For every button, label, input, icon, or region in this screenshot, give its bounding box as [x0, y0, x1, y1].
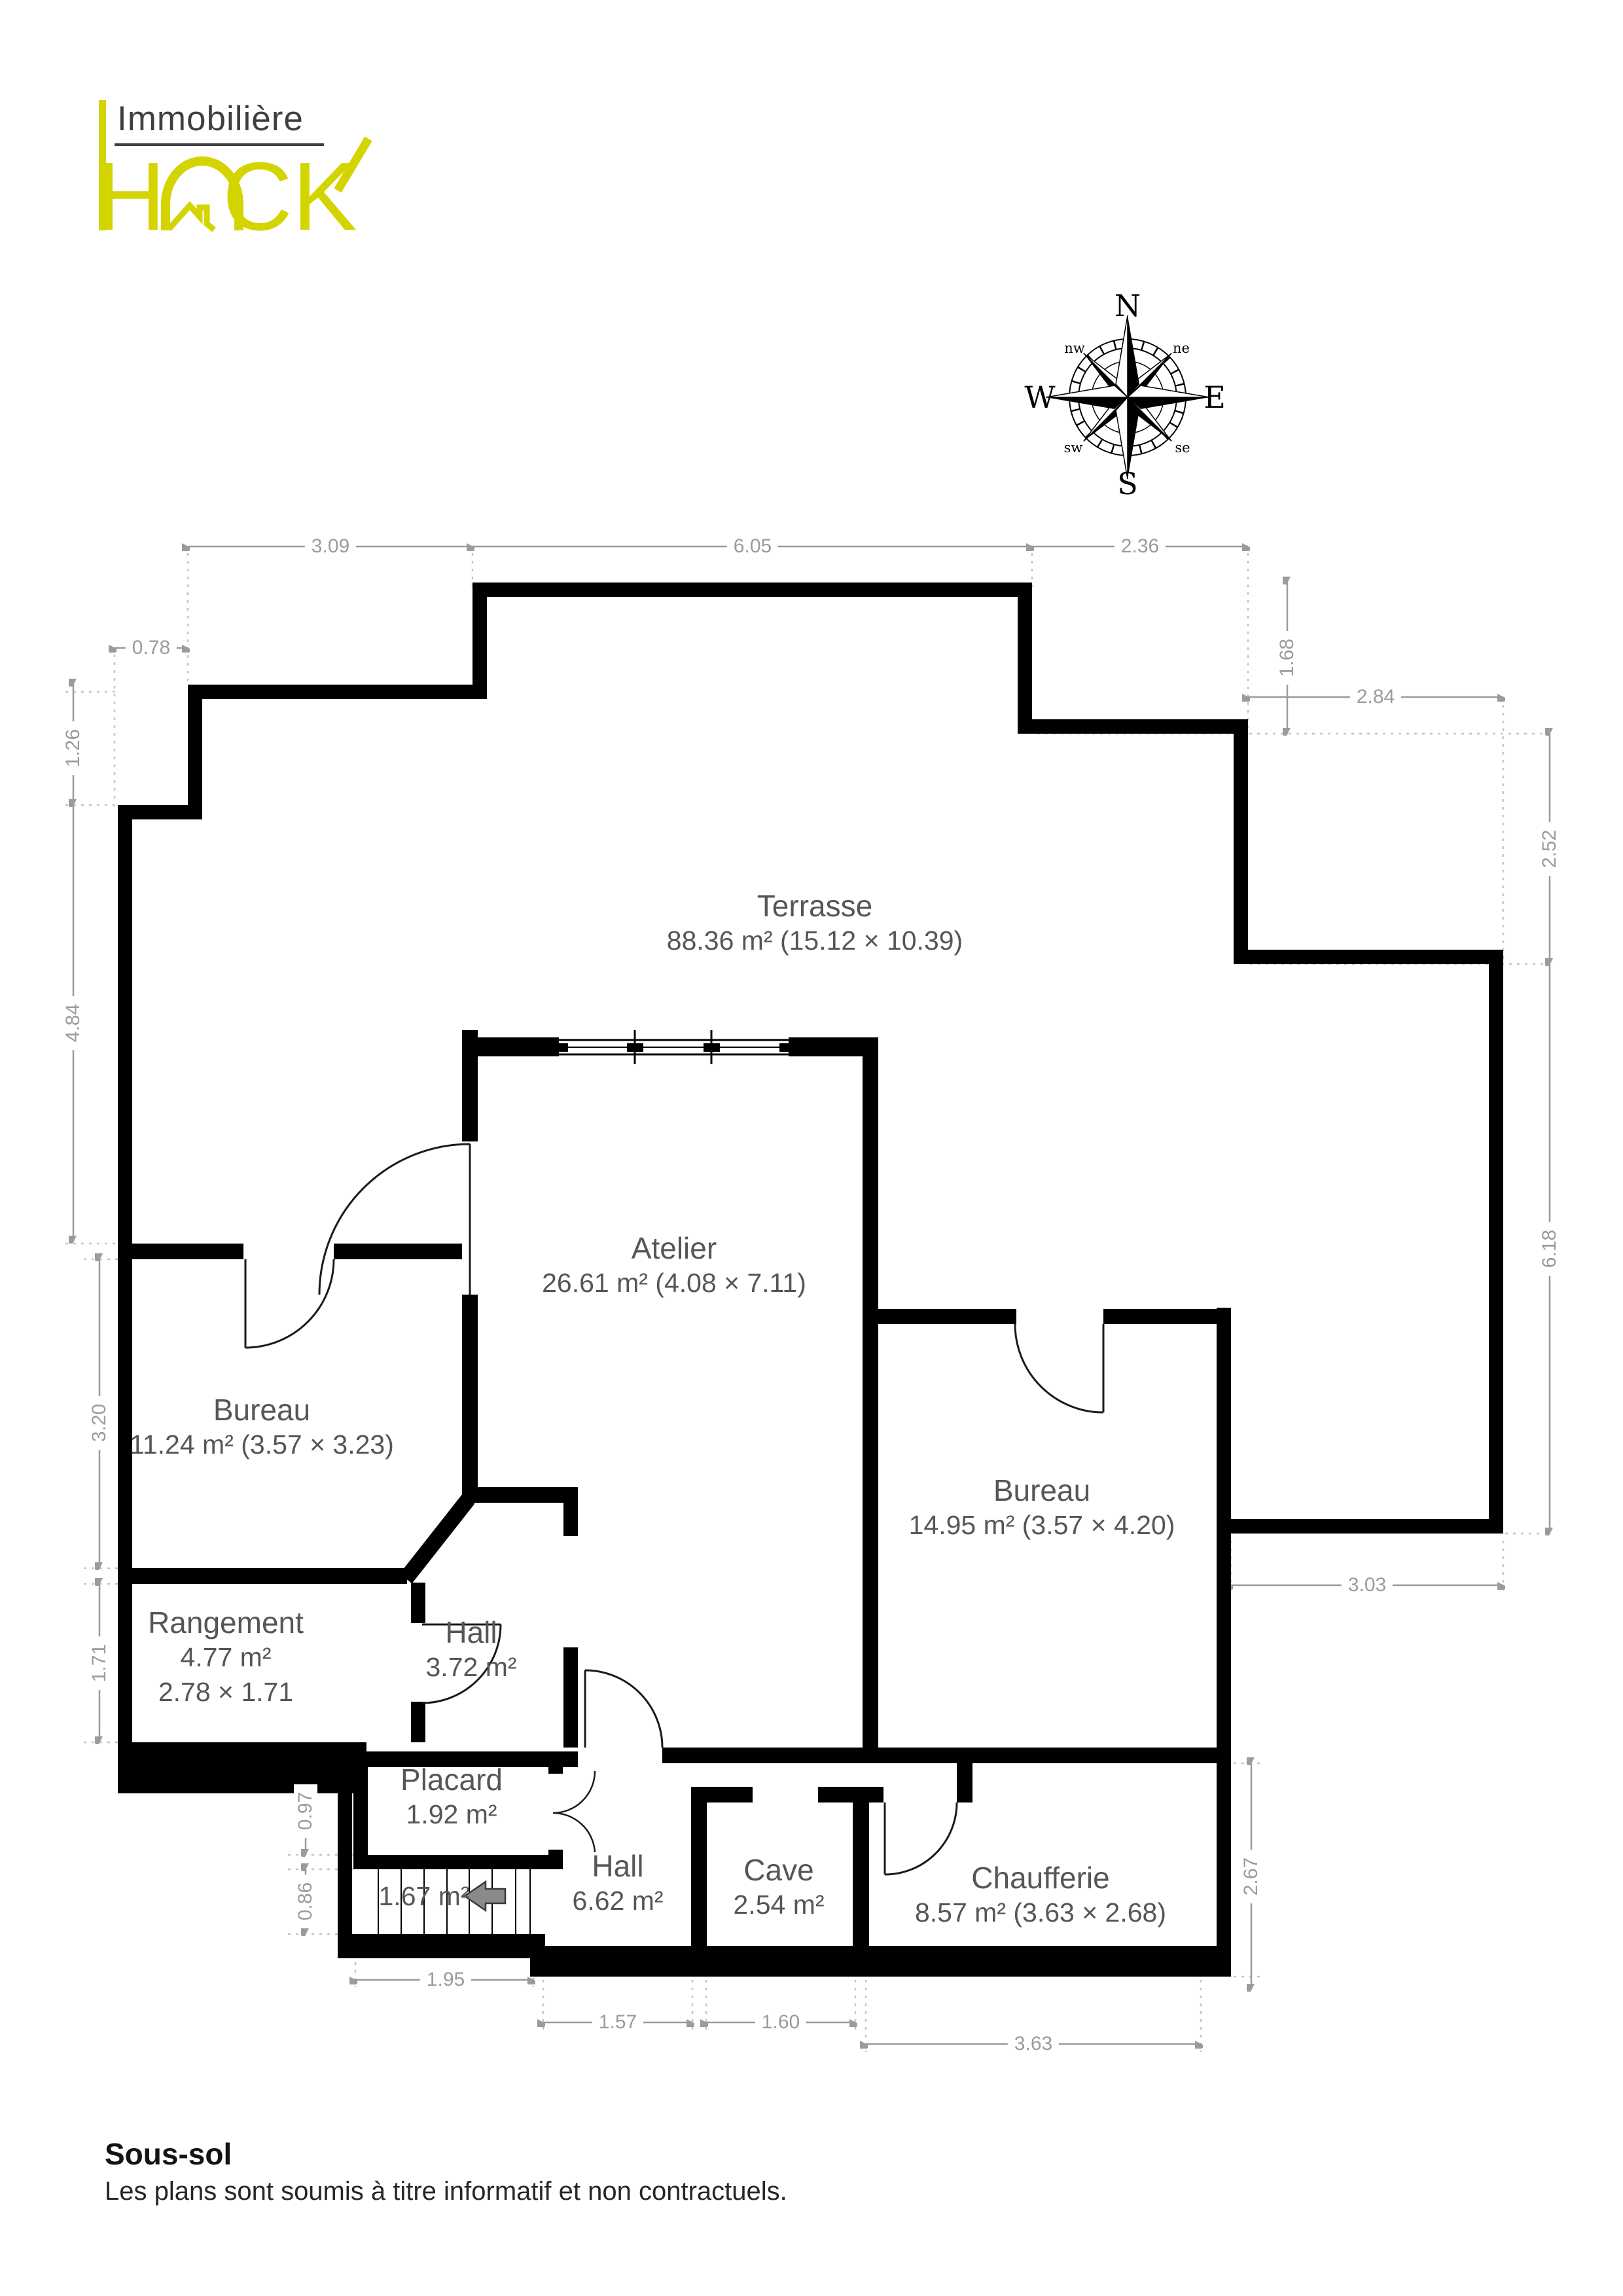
compass-northeast-label: ne — [1173, 340, 1190, 356]
dimension-lines — [73, 547, 1550, 2044]
compass-southwest-label: sw — [1064, 440, 1083, 456]
door-chaufferie — [885, 1803, 957, 1874]
compass-rose-icon: N E S W nw ne sw se — [1024, 288, 1225, 501]
compass-west-label: W — [1024, 380, 1056, 415]
disclaimer-text: Les plans sont soumis à titre informatif… — [105, 2173, 787, 2210]
door-rangement — [422, 1624, 501, 1703]
window — [559, 1030, 789, 1064]
staircase — [378, 1869, 530, 1934]
interior-walls — [118, 1030, 1231, 1977]
floorplan-page: Immobilière H CK — [0, 0, 1623, 2296]
door-terrasse — [319, 1144, 470, 1295]
door-atelier — [585, 1670, 662, 1748]
door-bureau-2 — [1015, 1324, 1103, 1412]
compass-south-label: S — [1117, 466, 1138, 501]
compass-north-label: N — [1115, 288, 1141, 323]
compass-northwest-label: nw — [1064, 340, 1085, 356]
dimension-extension-lines — [65, 553, 1544, 2052]
compass-southeast-label: se — [1175, 440, 1190, 456]
plan-footer: Sous-sol Les plans sont soumis à titre i… — [105, 2135, 787, 2210]
stairs-direction-arrow-icon — [465, 1882, 505, 1910]
floorplan-drawing: N E S W nw ne sw se — [0, 0, 1623, 2296]
door-placard-double — [553, 1771, 595, 1852]
compass-east-label: E — [1204, 380, 1226, 415]
floor-title: Sous-sol — [105, 2135, 787, 2173]
